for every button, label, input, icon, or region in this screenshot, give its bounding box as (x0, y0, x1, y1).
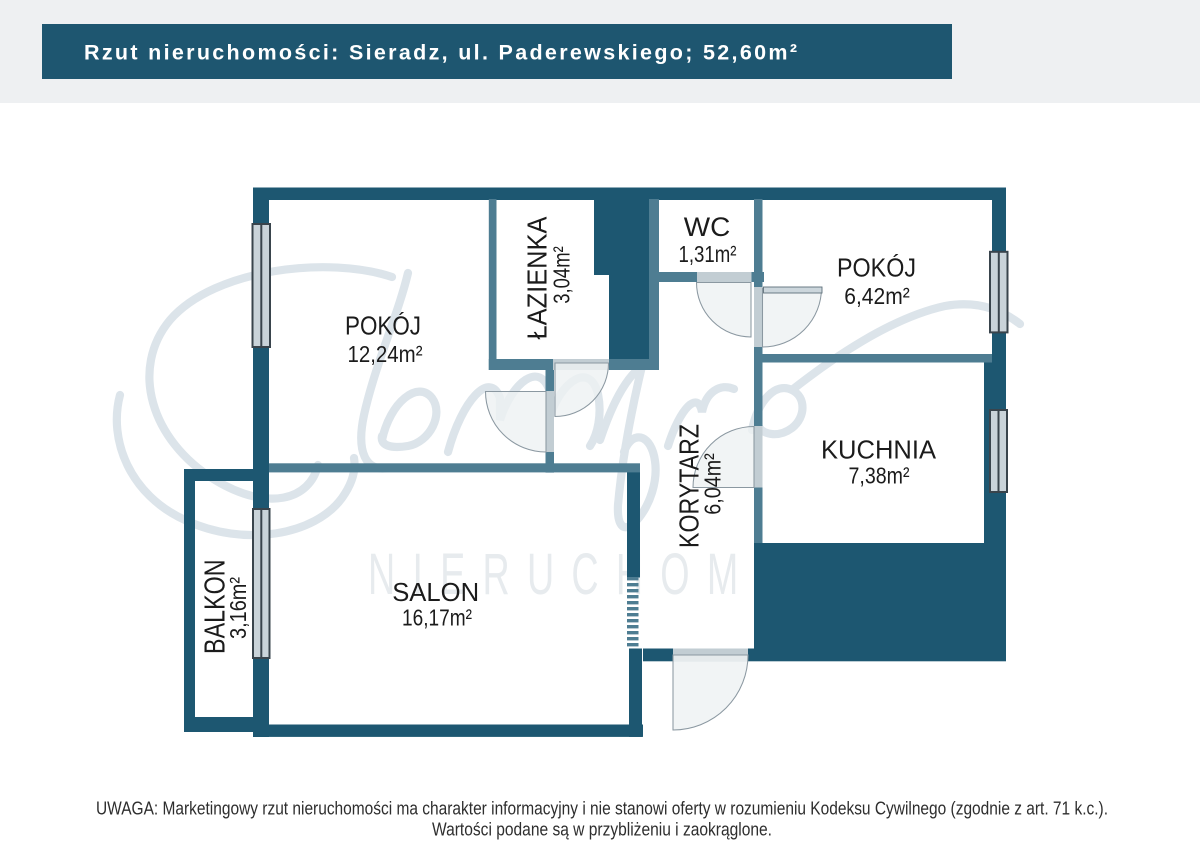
svg-text:3,16m²: 3,16m² (225, 577, 251, 639)
svg-text:16,17m²: 16,17m² (402, 605, 472, 631)
svg-text:1,31m²: 1,31m² (679, 241, 737, 267)
svg-text:7,38m²: 7,38m² (849, 463, 910, 489)
svg-text:WC: WC (684, 212, 731, 242)
svg-text:KUCHNIA: KUCHNIA (821, 435, 937, 465)
svg-text:12,24m²: 12,24m² (348, 341, 423, 367)
svg-text:3,04m²: 3,04m² (549, 246, 575, 304)
svg-text:6,42m²: 6,42m² (844, 283, 910, 309)
svg-text:Wartości podane są w przybliże: Wartości podane są w przybliżeniu i zaok… (432, 819, 772, 840)
svg-text:UWAGA: Marketingowy rzut nieru: UWAGA: Marketingowy rzut nieruchomości m… (96, 798, 1108, 819)
svg-text:POKÓJ: POKÓJ (345, 311, 421, 341)
svg-text:6,04m²: 6,04m² (700, 453, 726, 515)
svg-text:POKÓJ: POKÓJ (837, 253, 916, 283)
svg-text:SALON: SALON (392, 577, 479, 607)
